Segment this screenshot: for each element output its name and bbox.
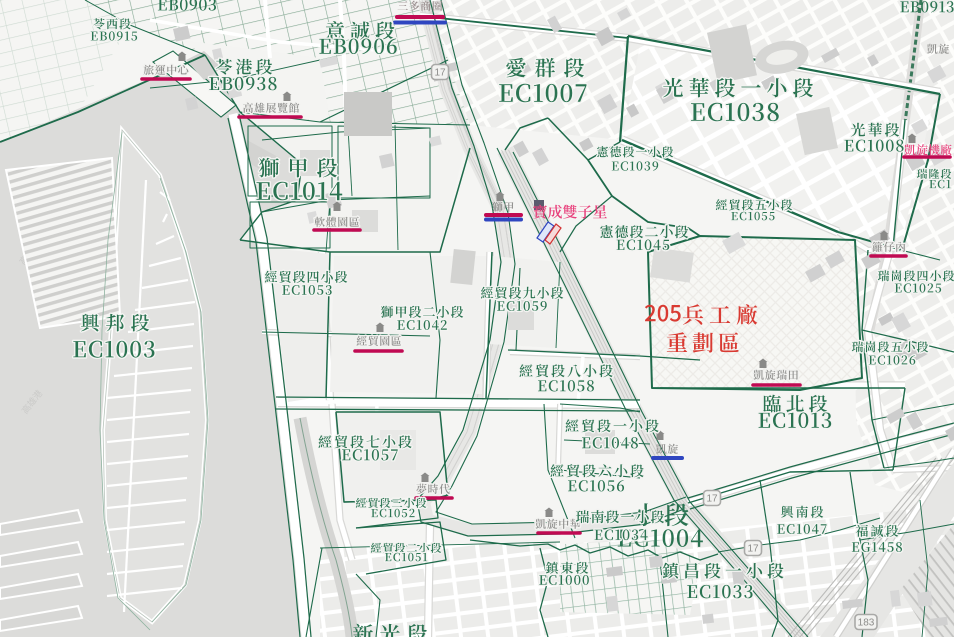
svg-text:17: 17 xyxy=(706,494,718,505)
svg-text:183: 183 xyxy=(858,618,875,629)
svg-text:17: 17 xyxy=(747,544,759,555)
svg-text:17: 17 xyxy=(434,68,446,79)
